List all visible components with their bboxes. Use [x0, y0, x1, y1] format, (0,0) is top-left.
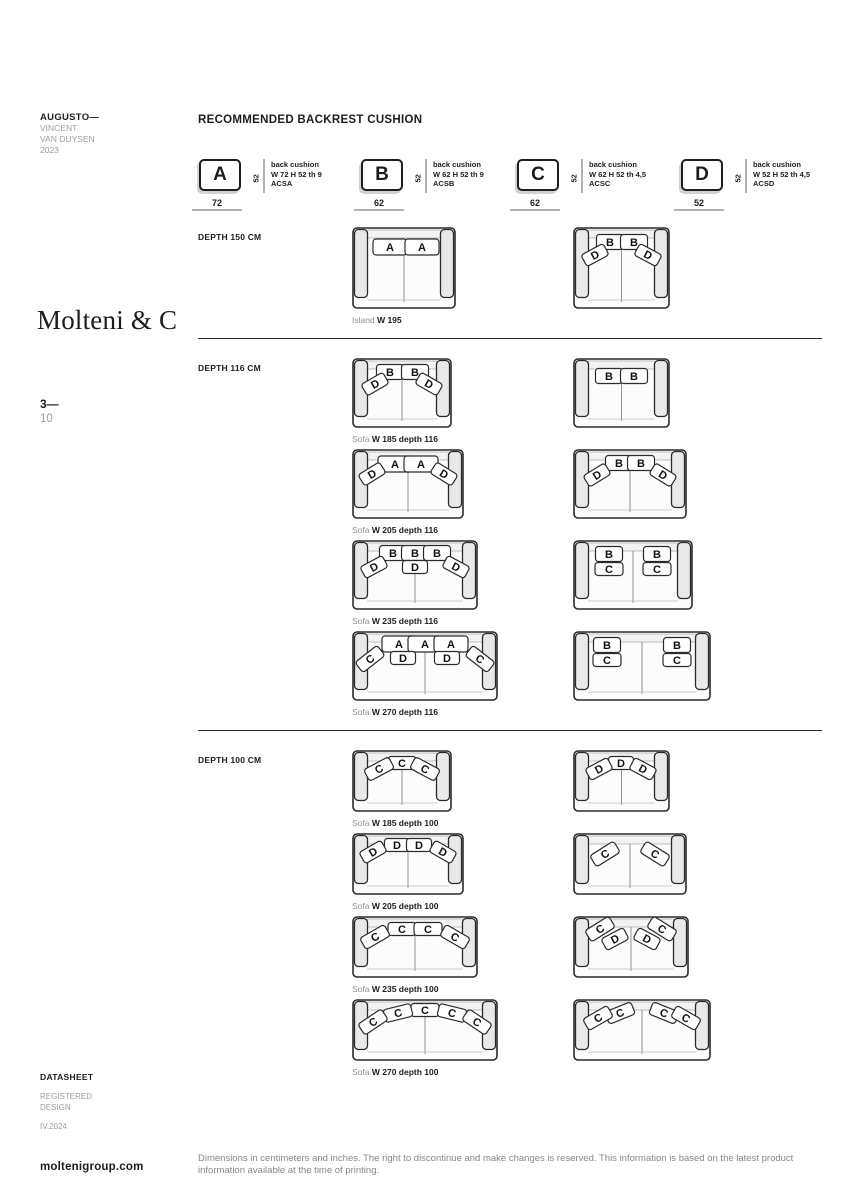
- svg-text:B: B: [411, 548, 419, 560]
- sofa-cell-left: CCCCCSofa W 270 depth 100: [352, 999, 573, 1077]
- caption-dimensions: W 195: [377, 315, 402, 325]
- cushion-legend-item-A: A 72 52 back cushionW 72 H 52 th 9ACSA: [198, 159, 360, 211]
- product-name: AUGUSTO—: [40, 112, 99, 123]
- cushion-C: C: [595, 563, 623, 576]
- svg-text:B: B: [615, 458, 623, 470]
- sofa-cell-left: BBBDDDSofa W 235 depth 116: [352, 540, 573, 626]
- sofa-top-view: BCBC: [573, 540, 693, 610]
- svg-text:C: C: [603, 655, 611, 667]
- main-content: RECOMMENDED BACKREST CUSHION A 72 52 bac…: [198, 114, 822, 1082]
- cushion-description: back cushionW 52 H 52 th 4,5ACSD: [753, 159, 810, 189]
- caption-type: Sofa: [352, 616, 370, 626]
- svg-text:A: A: [386, 242, 394, 254]
- caption-dimensions: W 205 depth 116: [372, 525, 438, 535]
- registered-design-label: REGISTERED DESIGN: [40, 1092, 92, 1113]
- page-number: 3—: [40, 397, 59, 411]
- sofa-cell-left: CCCSofa W 185 depth 100: [352, 750, 573, 828]
- svg-text:B: B: [386, 367, 394, 379]
- svg-text:D: D: [393, 840, 401, 852]
- caption-dimensions: W 270 depth 100: [372, 1067, 439, 1077]
- diagram-row: DEPTH 100 CMCCCSofa W 185 depth 100DDD: [198, 750, 822, 828]
- diagram-row: AADDSofa W 205 depth 116BBDD: [198, 449, 822, 535]
- cushion-box-column: B 62: [360, 159, 404, 211]
- cushion-height-dimension: 52: [250, 159, 265, 193]
- cushion-legend: A 72 52 back cushionW 72 H 52 th 9ACSA B…: [198, 159, 822, 211]
- svg-text:D: D: [411, 562, 419, 574]
- svg-text:D: D: [617, 758, 625, 770]
- caption-type: Sofa: [352, 901, 370, 911]
- designer-first-name: VINCENT: [40, 123, 99, 134]
- cushion-description: back cushionW 62 H 52 th 9ACSB: [433, 159, 484, 189]
- website-label: moltenigroup.com: [40, 1161, 144, 1173]
- sofa-cell-left: AAIsland W 195: [352, 227, 573, 325]
- svg-text:B: B: [433, 548, 441, 560]
- cushion-box-column: A 72: [198, 159, 242, 211]
- cushion-letter: C: [531, 164, 545, 186]
- cushion-height-label: 52: [734, 170, 743, 182]
- cushion-A: A: [373, 239, 407, 255]
- caption-dimensions: W 235 depth 100: [372, 984, 439, 994]
- cushion-description: back cushionW 72 H 52 th 9ACSA: [271, 159, 322, 189]
- sofa-top-view: AADD: [352, 449, 464, 519]
- sofa-caption: Sofa W 205 depth 100: [352, 901, 438, 911]
- sofa-caption: Island W 195: [352, 315, 402, 325]
- sofa-caption: Sofa W 185 depth 116: [352, 434, 438, 444]
- caption-dimensions: W 235 depth 116: [372, 616, 438, 626]
- sofa-caption: Sofa W 270 depth 100: [352, 1067, 438, 1077]
- diagram-row: DDDDSofa W 205 depth 100CC: [198, 833, 822, 911]
- caption-dimensions: W 185 depth 116: [372, 434, 438, 444]
- svg-text:A: A: [395, 639, 403, 651]
- sofa-cell-right: BBDD: [573, 449, 822, 519]
- sofa-caption: Sofa W 235 depth 116: [352, 616, 438, 626]
- cushion-letter: B: [375, 164, 389, 186]
- depth-sections: DEPTH 150 CMAAIsland W 195BBDDDEPTH 116 …: [198, 227, 822, 1077]
- svg-text:A: A: [391, 459, 399, 471]
- cushion-D: D: [403, 561, 428, 574]
- cushion-description: back cushionW 62 H 52 th 4,5ACSC: [589, 159, 646, 189]
- cushion-A: A: [405, 239, 439, 255]
- sofa-cell-right: CCCC: [573, 999, 822, 1061]
- svg-text:A: A: [447, 639, 455, 651]
- sofa-cell-right: BBDD: [573, 227, 822, 309]
- caption-type: Sofa: [352, 984, 370, 994]
- cushion-letter: D: [695, 164, 709, 186]
- cushion-D: D: [435, 652, 460, 665]
- cushion-letter-box: A: [199, 159, 241, 191]
- caption-dimensions: W 185 depth 100: [372, 818, 439, 828]
- sofa-cell-right: BB: [573, 358, 822, 428]
- sofa-cell-right: BCBC: [573, 540, 822, 610]
- doc-type-label: DATASHEET: [40, 1072, 93, 1082]
- cushion-letter-box: B: [361, 159, 403, 191]
- svg-text:A: A: [421, 639, 429, 651]
- cushion-D: D: [391, 652, 416, 665]
- edition-label: IV.2024: [40, 1122, 67, 1131]
- sofa-top-view: AA: [352, 227, 456, 309]
- sofa-cell-right: DDD: [573, 750, 822, 812]
- caption-type: Island: [352, 315, 375, 325]
- sofa-caption: Sofa W 185 depth 100: [352, 818, 438, 828]
- sofa-top-view: BBDD: [573, 449, 687, 519]
- cushion-C: C: [414, 923, 442, 936]
- svg-text:B: B: [605, 549, 613, 561]
- sofa-cell-left: AAACDDCSofa W 270 depth 116: [352, 631, 573, 717]
- cushion-height-label: 52: [252, 170, 261, 182]
- cushion-height-dimension: 52: [732, 159, 747, 193]
- cushion-B: B: [621, 369, 648, 384]
- cushion-letter-box: C: [517, 159, 559, 191]
- sofa-top-view: BBDD: [352, 358, 452, 428]
- sofa-top-view: CCCCC: [352, 999, 498, 1061]
- sofa-top-view: BBDD: [573, 227, 670, 309]
- depth-section: DEPTH 150 CMAAIsland W 195BBDD: [198, 227, 822, 325]
- svg-text:C: C: [398, 924, 406, 936]
- sofa-top-view: CCCC: [352, 916, 478, 978]
- sofa-top-view: BCBC: [573, 631, 711, 701]
- cushion-B: B: [628, 456, 655, 471]
- caption-dimensions: W 205 depth 100: [372, 901, 439, 911]
- sofa-top-view: CCC: [352, 750, 452, 812]
- cushion-A: A: [434, 636, 468, 652]
- cushion-width-label: 62: [354, 198, 404, 211]
- cushion-width-label: 72: [192, 198, 242, 211]
- caption-type: Sofa: [352, 818, 370, 828]
- cushion-width-label: 62: [510, 198, 560, 211]
- svg-text:B: B: [605, 371, 613, 383]
- page-title: RECOMMENDED BACKREST CUSHION: [198, 114, 822, 126]
- cushion-box-column: D 52: [680, 159, 724, 211]
- svg-text:C: C: [398, 758, 406, 770]
- svg-text:B: B: [637, 458, 645, 470]
- svg-text:B: B: [673, 640, 681, 652]
- cushion-legend-item-D: D 52 52 back cushionW 52 H 52 th 4,5ACSD: [680, 159, 810, 211]
- sofa-cell-left: DDDDSofa W 205 depth 100: [352, 833, 573, 911]
- diagram-row: DEPTH 116 CMBBDDSofa W 185 depth 116BB: [198, 358, 822, 444]
- sofa-top-view: BB: [573, 358, 670, 428]
- designer-last-name: VAN DUYSEN: [40, 134, 99, 145]
- cushion-D: D: [407, 839, 432, 852]
- sofa-top-view: CDCD: [573, 916, 689, 978]
- sofa-top-view: CCCC: [573, 999, 711, 1061]
- svg-text:C: C: [605, 564, 613, 576]
- cushion-height-dimension: 52: [412, 159, 427, 193]
- footnote: Dimensions in centimeters and inches. Th…: [198, 1153, 822, 1177]
- cushion-letter-box: D: [681, 159, 723, 191]
- cushion-C: C: [388, 923, 416, 936]
- cushion-height-dimension: 52: [568, 159, 583, 193]
- cushion-B: B: [664, 638, 691, 653]
- caption-type: Sofa: [352, 707, 370, 717]
- section-depth-label: DEPTH 100 CM: [198, 750, 352, 765]
- cushion-B: B: [596, 547, 623, 562]
- svg-text:C: C: [421, 1005, 429, 1017]
- sofa-cell-right: CDCD: [573, 916, 822, 978]
- svg-text:A: A: [417, 459, 425, 471]
- cushion-height-label: 52: [414, 170, 423, 182]
- svg-text:B: B: [606, 237, 614, 249]
- sofa-cell-left: AADDSofa W 205 depth 116: [352, 449, 573, 535]
- svg-text:A: A: [418, 242, 426, 254]
- sofa-top-view: BBBDDD: [352, 540, 478, 610]
- cushion-C: C: [643, 563, 671, 576]
- svg-text:B: B: [389, 548, 397, 560]
- sofa-cell-right: BCBC: [573, 631, 822, 701]
- cushion-B: B: [594, 638, 621, 653]
- cushion-legend-item-B: B 62 52 back cushionW 62 H 52 th 9ACSB: [360, 159, 516, 211]
- caption-dimensions: W 270 depth 116: [372, 707, 438, 717]
- svg-text:C: C: [673, 655, 681, 667]
- product-block: AUGUSTO— VINCENT VAN DUYSEN 2023: [40, 112, 99, 156]
- depth-section: DEPTH 100 CMCCCSofa W 185 depth 100DDDDD…: [198, 750, 822, 1077]
- svg-text:D: D: [399, 653, 407, 665]
- sofa-top-view: CC: [573, 833, 687, 895]
- sofa-caption: Sofa W 270 depth 116: [352, 707, 438, 717]
- cushion-B: B: [596, 369, 623, 384]
- svg-text:B: B: [630, 237, 638, 249]
- sofa-top-view: DDDD: [352, 833, 464, 895]
- registered-line-1: REGISTERED: [40, 1092, 92, 1103]
- section-depth-label: DEPTH 150 CM: [198, 227, 352, 242]
- caption-type: Sofa: [352, 1067, 370, 1077]
- cushion-C: C: [593, 654, 621, 667]
- sofa-cell-right: CC: [573, 833, 822, 895]
- diagram-row: CCCCSofa W 235 depth 100CDCD: [198, 916, 822, 994]
- cushion-letter: A: [213, 164, 227, 186]
- svg-text:B: B: [603, 640, 611, 652]
- page-number-block: 3— 10: [40, 397, 59, 425]
- diagram-row: AAACDDCSofa W 270 depth 116BCBC: [198, 631, 822, 717]
- sofa-caption: Sofa W 235 depth 100: [352, 984, 438, 994]
- svg-text:D: D: [443, 653, 451, 665]
- registered-line-2: DESIGN: [40, 1103, 92, 1114]
- caption-type: Sofa: [352, 525, 370, 535]
- cushion-height-label: 52: [570, 170, 579, 182]
- sofa-top-view: AAACDDC: [352, 631, 498, 701]
- design-year: 2023: [40, 145, 99, 156]
- cushion-box-column: C 62: [516, 159, 560, 211]
- section-divider: [198, 730, 822, 731]
- cushion-C: C: [663, 654, 691, 667]
- section-depth-label: DEPTH 116 CM: [198, 358, 352, 373]
- svg-text:B: B: [411, 367, 419, 379]
- svg-text:B: B: [653, 549, 661, 561]
- sofa-cell-left: CCCCSofa W 235 depth 100: [352, 916, 573, 994]
- sofa-cell-left: BBDDSofa W 185 depth 116: [352, 358, 573, 444]
- cushion-width-label: 52: [674, 198, 724, 211]
- diagram-row: CCCCCSofa W 270 depth 100CCCC: [198, 999, 822, 1077]
- svg-text:D: D: [415, 840, 423, 852]
- sofa-caption: Sofa W 205 depth 116: [352, 525, 438, 535]
- page-total: 10: [40, 413, 59, 425]
- diagram-row: DEPTH 150 CMAAIsland W 195BBDD: [198, 227, 822, 325]
- cushion-legend-item-C: C 62 52 back cushionW 62 H 52 th 4,5ACSC: [516, 159, 680, 211]
- diagram-row: BBBDDDSofa W 235 depth 116BCBC: [198, 540, 822, 626]
- svg-text:C: C: [424, 924, 432, 936]
- depth-section: DEPTH 116 CMBBDDSofa W 185 depth 116BBAA…: [198, 358, 822, 717]
- caption-type: Sofa: [352, 434, 370, 444]
- cushion-C: C: [411, 1004, 439, 1017]
- section-divider: [198, 338, 822, 339]
- sofa-top-view: DDD: [573, 750, 670, 812]
- brand-logo: Molteni & C: [37, 305, 177, 336]
- svg-text:C: C: [653, 564, 661, 576]
- svg-text:B: B: [630, 371, 638, 383]
- cushion-B: B: [644, 547, 671, 562]
- cushion-D: D: [385, 839, 410, 852]
- datasheet-page: AUGUSTO— VINCENT VAN DUYSEN 2023 Molteni…: [0, 0, 842, 1200]
